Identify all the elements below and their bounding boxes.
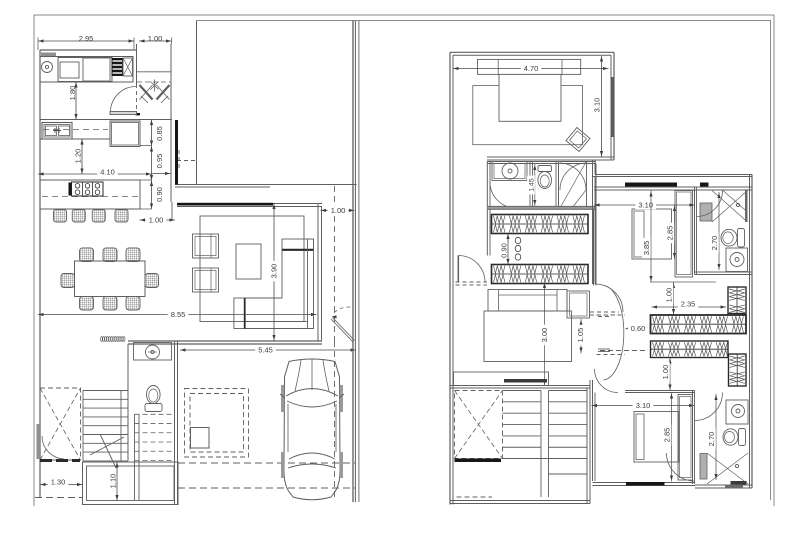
- svg-text:3.90: 3.90: [270, 264, 279, 279]
- svg-text:2.85: 2.85: [663, 428, 672, 443]
- svg-text:1.45: 1.45: [528, 178, 535, 191]
- svg-text:0.90: 0.90: [500, 243, 509, 258]
- svg-text:1.00: 1.00: [331, 206, 346, 215]
- svg-text:4.10: 4.10: [100, 168, 115, 177]
- svg-text:0.90: 0.90: [155, 187, 164, 202]
- svg-text:5.45: 5.45: [258, 346, 273, 355]
- svg-text:2.35: 2.35: [681, 300, 696, 309]
- svg-text:8.55: 8.55: [171, 310, 186, 319]
- svg-text:1.00: 1.00: [665, 288, 674, 303]
- svg-text:0.85: 0.85: [155, 126, 164, 141]
- svg-text:1.00: 1.00: [149, 216, 164, 225]
- svg-text:1.10: 1.10: [109, 474, 118, 489]
- svg-text:2.85: 2.85: [666, 226, 675, 241]
- svg-text:0.60: 0.60: [631, 324, 646, 333]
- svg-text:4.70: 4.70: [524, 64, 539, 73]
- svg-text:1.05: 1.05: [576, 328, 585, 343]
- svg-text:0.95: 0.95: [155, 154, 164, 169]
- svg-text:3.10: 3.10: [593, 98, 602, 113]
- svg-text:1.30: 1.30: [51, 478, 66, 487]
- svg-text:1.00: 1.00: [661, 365, 670, 380]
- svg-text:3.00: 3.00: [540, 328, 549, 343]
- svg-text:1.00: 1.00: [148, 34, 163, 43]
- svg-text:1.20: 1.20: [74, 149, 83, 164]
- svg-text:2.95: 2.95: [79, 34, 94, 43]
- svg-text:3.10: 3.10: [636, 401, 651, 410]
- svg-text:3.85: 3.85: [642, 241, 651, 256]
- svg-text:1.80: 1.80: [68, 86, 77, 101]
- svg-text:2.70: 2.70: [707, 432, 716, 447]
- svg-text:2.70: 2.70: [710, 236, 719, 251]
